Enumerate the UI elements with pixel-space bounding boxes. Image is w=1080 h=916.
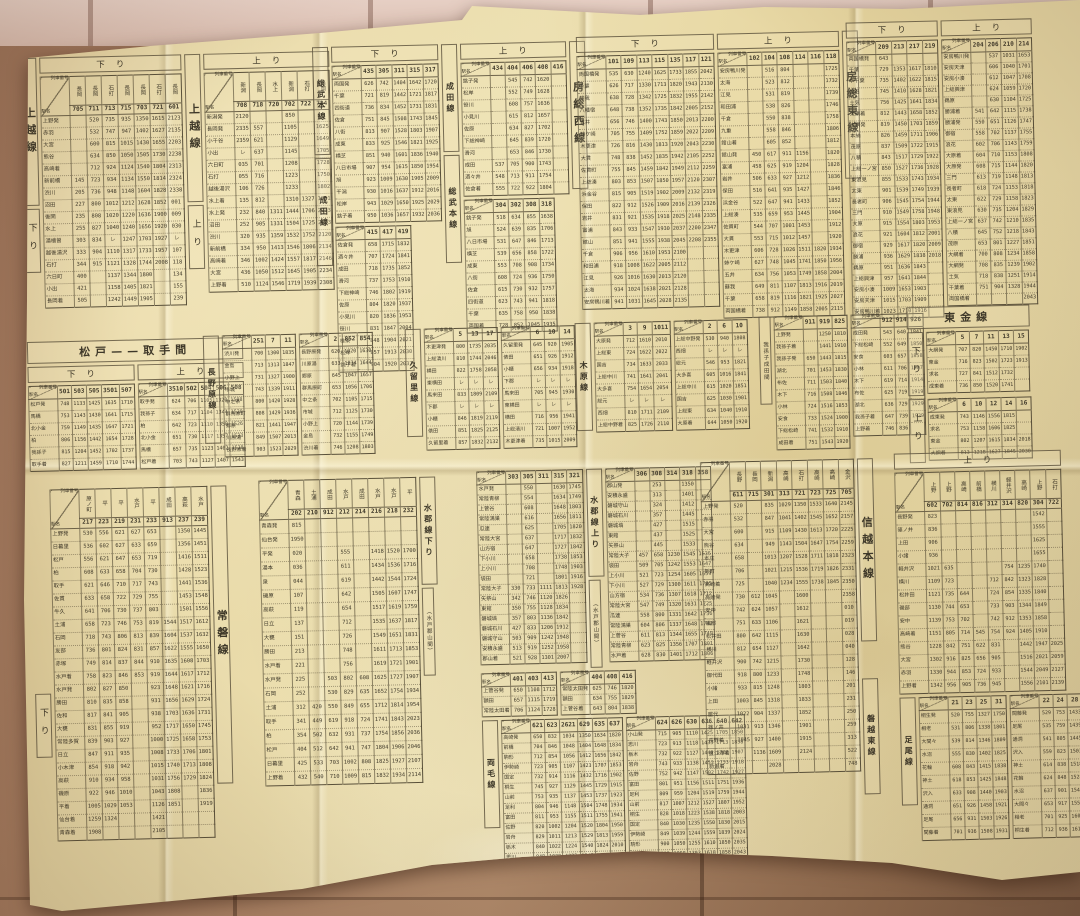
train-number-cell: 913 — [159, 516, 175, 526]
time-cell: 1511 — [192, 551, 208, 564]
time-cell: 1127 — [765, 643, 781, 656]
time-cell: 802 — [83, 684, 99, 697]
time-cell: 1820 — [381, 299, 397, 311]
time-cell: 1927 — [153, 233, 169, 245]
time-cell: 2123 — [166, 113, 182, 125]
time-cell: 1658 — [908, 108, 924, 119]
time-cell: 1908 — [87, 827, 103, 840]
time-cell: 1656 — [552, 513, 568, 523]
time-cell: 524 — [494, 224, 509, 236]
time-cell: 1648 — [163, 682, 179, 695]
time-cell — [782, 708, 798, 721]
train-number-cell: 101 — [606, 55, 621, 68]
time-cell: 231 — [843, 693, 859, 706]
time-cell: 705 — [607, 128, 622, 140]
time-cell: 658 — [365, 239, 380, 251]
train-number-cell: 311 — [391, 65, 407, 78]
train-number-cell: 209 — [875, 41, 891, 54]
time-cell: 712 — [87, 163, 103, 175]
time-cell: 1012 — [104, 198, 120, 210]
time-cell: 835 — [991, 260, 1006, 271]
train-number-cell: 233 — [143, 516, 159, 526]
time-cell: 931 — [148, 695, 164, 708]
time-cell: 1113 — [672, 859, 687, 869]
time-cell: 930 — [364, 186, 379, 198]
time-cell: 1615 — [394, 161, 410, 173]
time-cell — [133, 761, 149, 774]
time-cell: 1954 — [405, 698, 421, 712]
time-cell — [828, 680, 844, 693]
time-cell: 1350 — [680, 480, 696, 490]
time-cell: 1912 — [555, 623, 571, 633]
time-cell — [747, 565, 763, 578]
time-cell: 1833 — [797, 694, 813, 707]
time-cell: 656 — [973, 653, 988, 666]
time-cell — [972, 588, 987, 601]
time-cell: 1137 — [561, 792, 579, 802]
time-cell: 1931 — [994, 826, 1009, 839]
destination-cell: 前橋 — [969, 471, 985, 500]
time-cell: 1909 — [912, 295, 928, 306]
time-cell: 904 — [991, 282, 1006, 293]
station-cell: 姉ケ崎 — [723, 257, 752, 270]
time-cell: 1820 — [568, 522, 584, 532]
time-cell: 1604 — [895, 230, 911, 241]
train-number-cell: 919 — [817, 316, 832, 329]
time-cell: 1959 — [610, 831, 625, 841]
time-cell: 2036 — [426, 209, 442, 221]
train-number-cell: 115 — [652, 54, 668, 67]
station-cell: 銚子着 — [335, 211, 364, 224]
time-cell: 1000 — [149, 734, 165, 747]
time-cell — [401, 516, 417, 530]
time-cell: 552 — [881, 339, 895, 351]
time-cell: 1555 — [178, 643, 194, 656]
time-cell: 1557 — [1069, 798, 1080, 811]
timetable-row: 高崎着92311131318163319132058 — [629, 858, 747, 871]
time-cell: 755 — [622, 128, 638, 140]
time-cell: 1949 — [670, 163, 686, 175]
time-cell: 420 — [309, 701, 325, 715]
time-cell: 040 — [842, 641, 858, 654]
time-cell: 1749 — [567, 493, 583, 503]
train-number-cell: 6 — [530, 326, 544, 339]
time-cell: 741 — [624, 371, 638, 383]
time-cell: 716 — [532, 411, 546, 423]
time-cell: 1605 — [1070, 811, 1080, 824]
line-label-ryomo: 両毛線 — [482, 720, 501, 828]
time-cell: 633 — [950, 788, 964, 801]
station-cell: 神土 — [921, 775, 950, 789]
time-cell: 1757 — [541, 283, 557, 295]
train-number-cell: 1011 — [652, 321, 670, 334]
time-cell: 341 — [293, 715, 309, 729]
time-cell: 1433 — [1067, 707, 1080, 720]
time-cell: 1818 — [716, 808, 731, 818]
station-cell: 高崎着 — [898, 628, 927, 642]
time-cell: 841 — [100, 710, 116, 723]
time-cell: 851 — [363, 150, 378, 162]
time-cell: 658 — [97, 593, 113, 606]
time-cell — [779, 591, 795, 604]
station-cell: 長野着 — [707, 735, 736, 749]
time-cell: 903 — [101, 736, 117, 749]
time-cell: 1331 — [667, 610, 683, 620]
time-cell — [956, 549, 971, 562]
time-cell — [134, 787, 150, 800]
time-cell: 753 — [532, 792, 546, 802]
time-cell: 630 — [621, 68, 637, 80]
time-cell — [736, 761, 752, 774]
time-cell: 835 — [524, 223, 540, 235]
time-cell — [991, 293, 1006, 304]
time-cell: 909 — [524, 634, 539, 644]
time-cell: 611 — [881, 363, 895, 375]
time-cell — [1046, 508, 1062, 521]
station-cell: 国定 — [628, 820, 657, 831]
time-cell: 1808 — [166, 786, 182, 799]
train-number-cell: 408 — [535, 61, 551, 74]
time-cell: 1210 — [1005, 216, 1021, 227]
time-cell: 808 — [88, 211, 104, 223]
time-cell: 819 — [778, 88, 794, 100]
time-cell: 1532 — [820, 425, 835, 437]
station-cell: 常陸青柳 — [609, 641, 638, 652]
station-cell: 千葉 — [467, 308, 496, 321]
station-cell: 足利 — [503, 803, 532, 814]
time-cell: 1657 — [395, 209, 411, 221]
time-cell — [506, 504, 521, 514]
time-cell: 1745 — [196, 720, 212, 733]
time-cell: 1048 — [560, 742, 578, 752]
time-cell: 1158 — [972, 423, 987, 435]
time-cell: 1708 — [1017, 73, 1033, 84]
narita-up-table: 列車番号駅名434404406408416銚子発5457421620松岸5527… — [460, 60, 569, 196]
time-cell: 653 — [144, 526, 160, 539]
station-cell: 上総湊 — [580, 177, 609, 190]
train-number-label: 列車番号 — [512, 327, 530, 332]
time-cell: レ — [483, 376, 498, 388]
ryomo-down-table: 列車番号駅名6216232621629635637高崎発650832103413… — [501, 717, 626, 874]
time-cell: 1706 — [300, 206, 316, 218]
train-number-cell: 713 — [102, 104, 118, 114]
time-cell: 1207 — [972, 435, 987, 447]
time-cell: 1705 — [552, 523, 568, 533]
time-cell: 950 — [253, 243, 269, 255]
timetable-row: 上野着51011241546171919392308 — [209, 277, 334, 292]
time-cell: 1459 — [88, 458, 103, 470]
station-label: 駅名 — [502, 335, 511, 340]
time-cell — [665, 520, 681, 530]
station-cell: 上菅谷 — [477, 504, 506, 515]
time-cell: 638 — [607, 92, 622, 104]
time-cell: 817 — [84, 710, 100, 723]
time-cell: 2041 — [653, 370, 671, 382]
timetable-row: 成東着73685015201741 — [928, 379, 1030, 393]
time-cell: 1743 — [537, 158, 553, 170]
time-cell: 2004 — [828, 267, 844, 279]
train-number-cell: 711 — [86, 105, 102, 115]
time-cell: 2054 — [654, 382, 672, 394]
time-cell: 505 — [74, 295, 90, 307]
time-cell — [827, 654, 843, 667]
station-cell: 大原着 — [676, 418, 705, 431]
time-cell: 619 — [325, 714, 341, 728]
time-cell: 1743 — [910, 174, 926, 185]
time-cell — [119, 826, 135, 839]
line-label-joetsu: 上越線 — [20, 58, 39, 206]
station-cell: 富浦 — [581, 225, 610, 238]
destination-cell: 石打 — [149, 74, 166, 103]
station-cell: 大原着 — [944, 151, 973, 163]
time-cell: 1825 — [992, 748, 1007, 761]
time-cell — [907, 53, 923, 64]
time-cell: 723 — [531, 762, 545, 772]
station-cell: 松岸 — [461, 88, 490, 101]
time-cell: 255 — [73, 223, 89, 235]
time-cell: 1022 — [735, 709, 751, 722]
station-cell: 上総一ノ宮 — [849, 164, 878, 176]
time-cell: 1344 — [668, 630, 684, 640]
train-number-label: 列車番号 — [784, 317, 802, 322]
station-cell: 松井田 — [704, 631, 733, 645]
time-cell — [971, 63, 986, 74]
time-cell: 701 — [951, 827, 965, 840]
time-cell: 1040 — [105, 222, 121, 234]
station-cell: 磐城守山 — [606, 501, 635, 512]
time-cell: 1820 — [825, 147, 841, 159]
time-cell — [305, 533, 321, 547]
train-number-cell: 214 — [1016, 38, 1032, 51]
destination-cell: 長岡 — [249, 72, 266, 101]
time-cell: 705 — [532, 387, 546, 399]
time-cell — [809, 124, 825, 136]
time-cell: 853 — [131, 670, 147, 683]
header-down: 下り — [846, 21, 938, 39]
time-cell: 1813 — [1019, 172, 1035, 183]
station-cell: 松戸着 — [140, 456, 169, 469]
time-cell — [793, 88, 809, 100]
time-cell: 900 — [734, 657, 750, 670]
time-cell: 521 — [636, 571, 651, 581]
time-cell: 421 — [74, 283, 90, 295]
time-cell: 1443 — [893, 109, 909, 120]
time-cell: 1129 — [561, 782, 579, 792]
destination-cell: 長野 — [729, 462, 745, 491]
time-cell: 742 — [749, 656, 765, 669]
destination-cell: 平 — [111, 488, 128, 517]
station-cell: 大網着 — [848, 109, 877, 121]
time-cell: 1938 — [656, 235, 672, 247]
time-cell: 1803 — [797, 681, 813, 694]
station-cell: 新潟発 — [205, 112, 234, 125]
time-cell — [71, 163, 87, 175]
time-cell — [306, 589, 322, 603]
time-cell: 1725 — [1017, 95, 1033, 106]
time-cell: 1442 — [392, 90, 408, 102]
suigun-note: （水戸郡山間） — [422, 588, 436, 676]
time-cell: 1425 — [892, 98, 908, 109]
train-number-cell: 308 — [649, 468, 664, 481]
time-cell: 1650 — [180, 721, 196, 734]
time-cell: 746 — [605, 684, 620, 694]
time-cell — [891, 54, 907, 65]
time-cell: 817 — [657, 800, 671, 810]
timetable-row: 安房鴨川着9411031164520282135 — [582, 294, 719, 309]
time-cell: 1031 — [1001, 51, 1017, 62]
time-cell: 751 — [733, 618, 749, 631]
time-cell: 1825 — [1002, 422, 1017, 434]
station-cell: 横田 — [503, 412, 532, 425]
time-cell: 1640 — [823, 498, 839, 511]
station-cell: 松戸 — [265, 743, 294, 758]
train-number-cell: 317 — [422, 64, 438, 77]
time-cell: 1832 — [470, 437, 485, 449]
time-cell: 1836 — [826, 171, 842, 183]
time-cell: 502 — [310, 729, 326, 743]
time-cell — [118, 813, 134, 826]
train-number-label: 列車番号 — [1021, 695, 1039, 700]
time-cell: 1859 — [669, 127, 685, 139]
time-cell: 1320 — [667, 600, 683, 610]
suigun-up-table: 列車番号駅名306308314318358郡山発2531350安積永盛31314… — [604, 466, 715, 662]
station-cell: 下総松崎 — [852, 339, 881, 352]
time-cell: 759 — [1054, 720, 1068, 733]
time-cell: 1509 — [893, 142, 909, 153]
time-cell: 1615 — [987, 435, 1002, 447]
time-cell — [161, 578, 177, 591]
time-cell: 1402 — [134, 126, 150, 138]
timetable-row: 水戸着628830140117121806 — [609, 649, 715, 661]
time-cell: 1735 — [467, 341, 482, 353]
train-number-cell: 417 — [380, 226, 396, 239]
station-cell: 沼田 — [208, 220, 237, 233]
time-cell: 1806 — [825, 123, 841, 135]
corner-cell: 列車番号駅名 — [560, 671, 589, 685]
time-cell — [812, 232, 828, 244]
timetable: 列車番号駅名435305311315317両国発6267421404164217… — [331, 63, 442, 223]
station-cell: 成田 — [463, 160, 492, 173]
time-cell: 205 — [72, 187, 88, 199]
time-cell: 923 — [363, 174, 378, 186]
time-cell: 1821 — [138, 282, 154, 294]
station-cell: 佐野 — [504, 823, 533, 834]
time-cell: 721 — [362, 90, 377, 102]
time-cell: 612 — [748, 591, 764, 604]
time-cell: 1138 — [685, 759, 700, 769]
time-cell: 1543 — [820, 437, 835, 449]
time-cell: 1619 — [372, 657, 388, 671]
time-cell: 118 — [169, 257, 185, 269]
station-cell: 金島 — [223, 360, 252, 373]
time-cell: 548 — [492, 171, 507, 183]
train-number-cell: 303 — [506, 471, 521, 484]
time-cell — [780, 643, 796, 656]
train-number-cell: 306 — [634, 468, 649, 481]
time-cell: 953 — [547, 812, 562, 822]
time-cell: 1955 — [684, 91, 700, 103]
time-cell: 941 — [780, 196, 796, 208]
time-cell: 758 — [83, 671, 99, 684]
time-cell: 919 — [779, 160, 795, 172]
time-cell: 706 — [185, 396, 199, 408]
time-cell: 929 — [880, 241, 896, 252]
time-cell: 1442 — [370, 573, 386, 587]
time-cell: 911 — [101, 749, 117, 762]
time-cell: 2009 — [562, 435, 577, 447]
station-cell: 安房天津 — [942, 63, 971, 75]
time-cell: 935 — [253, 231, 269, 243]
time-cell — [354, 560, 370, 574]
time-cell — [490, 87, 505, 99]
time-cell — [1004, 678, 1019, 691]
time-cell: 1523 — [268, 444, 283, 456]
time-cell: 1936 — [282, 407, 297, 419]
destination-cell: 長岡 — [117, 75, 134, 104]
panel-kururi: 久留里線 列車番号駅名51317木更津発80017352035上総清川81017… — [405, 325, 578, 451]
time-cell: 1815 — [833, 352, 848, 364]
train-number-cell: 302 — [508, 199, 523, 212]
time-cell: 611 — [638, 631, 653, 641]
timetable: 列車番号駅名青森土浦成田水戸成田水戸水戸平2022109122122142162… — [258, 477, 423, 787]
station-cell: 泉 — [261, 575, 290, 590]
time-cell: 931 — [342, 728, 358, 742]
time-cell: 558 — [763, 125, 778, 137]
time-cell: 829 — [341, 686, 357, 700]
time-cell: 806 — [653, 621, 668, 631]
time-cell: 1849 — [1033, 600, 1049, 613]
station-cell: 佐倉着 — [464, 184, 493, 197]
header-up: 上り — [894, 450, 1061, 470]
time-cell: 919 — [116, 722, 132, 735]
train-number-cell: 715 — [746, 490, 762, 500]
time-cell: 1858 — [1033, 613, 1049, 626]
time-cell: 1817 — [423, 89, 439, 101]
sheet-content: 上越線 下り 下り 列車番号駅名長岡長岡石打長岡長岡石打長岡7057117137… — [0, 0, 1080, 916]
station-cell: 勝浦 — [851, 252, 880, 264]
time-cell: 1544 — [162, 617, 178, 630]
time-cell: 2059 — [1049, 651, 1065, 664]
timetable: 列車番号駅名21232531桐生発52075513271750相老5318061… — [918, 695, 1009, 841]
station-cell: 上野発 — [701, 501, 730, 515]
time-cell: 936 — [965, 826, 979, 839]
station-cell: 大宮 — [702, 527, 731, 541]
time-cell: 919 — [147, 669, 163, 682]
time-cell: 1128 — [539, 603, 555, 613]
time-cell: 1828 — [826, 159, 842, 171]
time-cell: 547 — [637, 601, 652, 611]
station-cell: 平発 — [260, 547, 289, 562]
time-cell: 615 — [495, 284, 510, 296]
time-cell: 823 — [925, 511, 941, 524]
time-cell: 1636 — [180, 708, 196, 721]
time-cell: 437 — [650, 531, 665, 541]
time-cell: 1026 — [781, 244, 797, 256]
station-cell: 磐城守山 — [480, 634, 509, 645]
time-cell: 1610 — [641, 248, 657, 260]
time-cell: 1853 — [834, 400, 849, 412]
time-cell: 612 — [986, 74, 1001, 85]
time-cell: 1533 — [894, 175, 910, 186]
time-cell: 926 — [611, 272, 626, 284]
station-cell: 上菅谷着 — [561, 704, 590, 715]
time-cell: 651 — [168, 432, 186, 444]
train-number-cell: 15 — [1013, 330, 1028, 343]
time-cell: 810 — [625, 407, 639, 419]
station-cell: 常陸多賀 — [56, 736, 85, 750]
time-cell — [634, 481, 649, 491]
time-cell: 1212 — [686, 799, 701, 809]
